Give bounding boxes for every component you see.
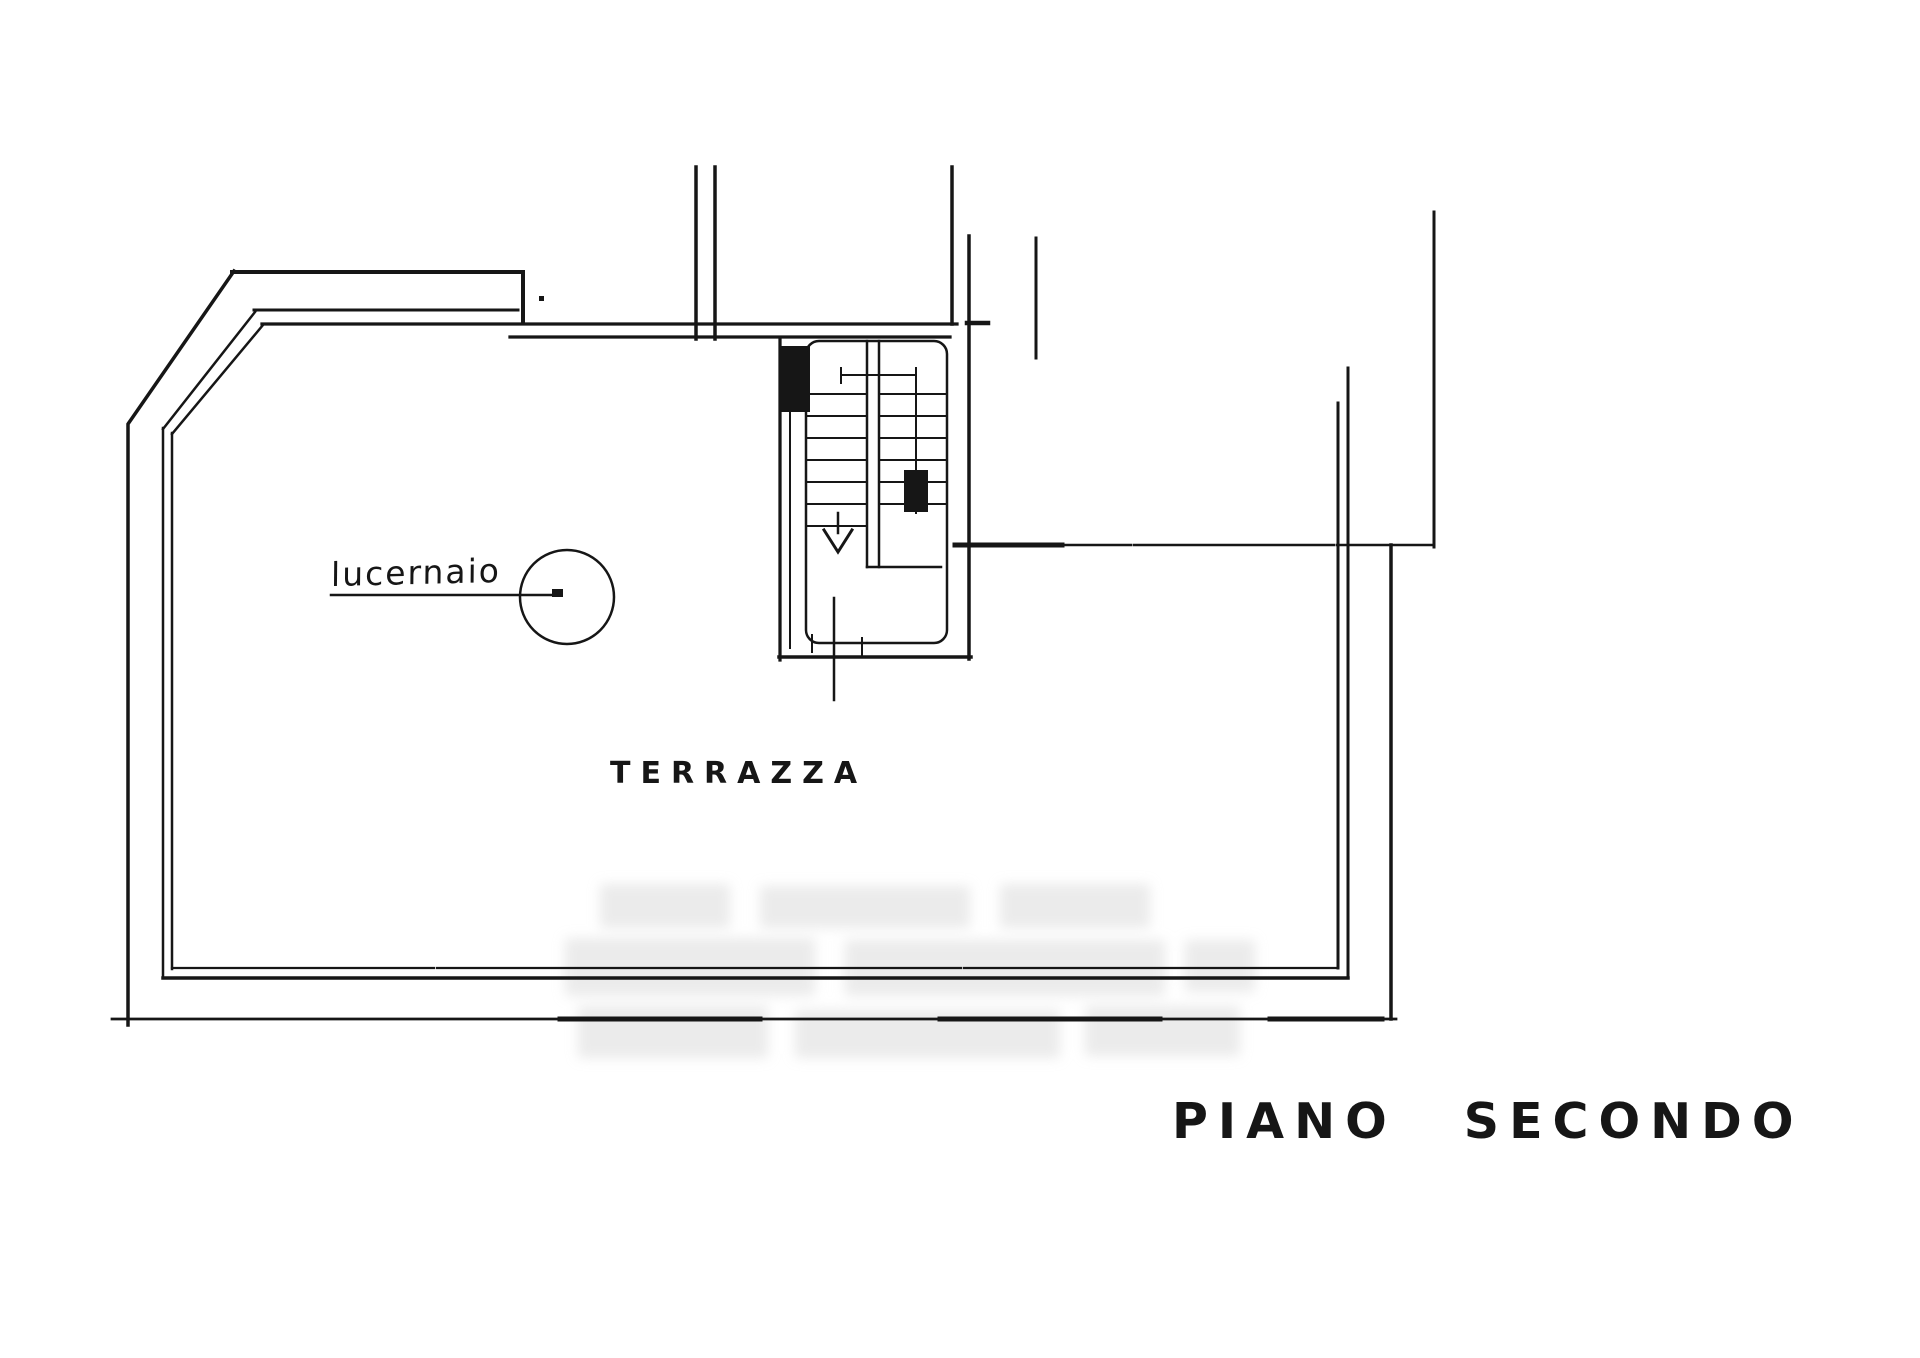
skylight-leader-tick <box>552 589 563 597</box>
wall-line <box>232 272 523 323</box>
stair-bottom-ticks <box>812 635 862 655</box>
floorplan-drawing <box>0 0 1920 1358</box>
stair-wall-fill-small <box>904 470 928 512</box>
terrace-parapet-inner <box>163 310 1348 978</box>
stairwell <box>779 338 971 700</box>
skylight-circle <box>520 550 614 644</box>
wall-line-chamfer <box>128 271 234 1025</box>
floor-title: PIANO SECONDO <box>1172 1097 1804 1146</box>
stair-treads-left <box>806 394 867 526</box>
skylight-label: lucernaio <box>331 554 501 591</box>
terrace-label: TERRAZZA <box>610 759 867 789</box>
parapet-diagonal <box>163 312 255 429</box>
watermark <box>565 884 1255 1058</box>
scan-speck <box>539 296 544 301</box>
floorplan-page: lucernaio TERRAZZA PIANO SECONDO <box>0 0 1920 1358</box>
